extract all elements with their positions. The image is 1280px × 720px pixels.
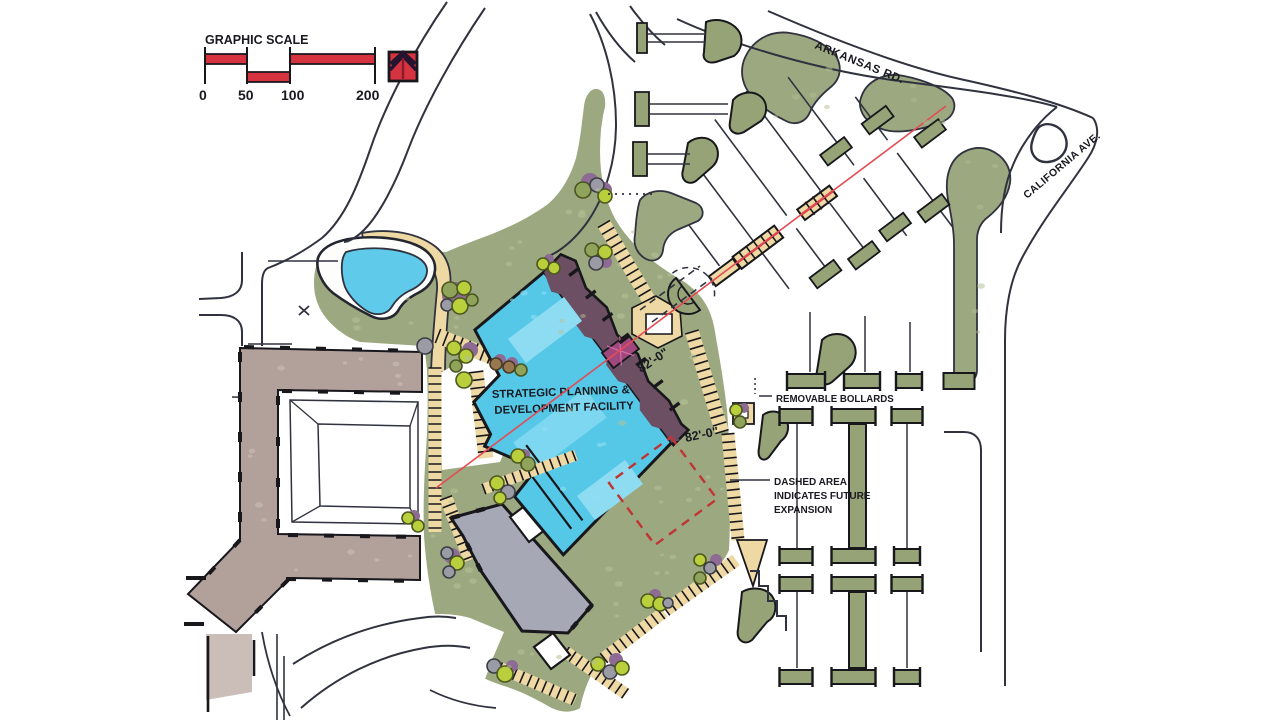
svg-text:200: 200 (356, 87, 380, 103)
svg-text:50: 50 (238, 87, 254, 103)
svg-text:INDICATES FUTURE: INDICATES FUTURE (774, 491, 871, 502)
svg-text:GRAPHIC SCALE: GRAPHIC SCALE (205, 33, 308, 47)
svg-text:REMOVABLE BOLLARDS: REMOVABLE BOLLARDS (776, 394, 894, 405)
svg-text:100: 100 (281, 87, 305, 103)
svg-text:0: 0 (199, 87, 207, 103)
svg-text:EXPANSION: EXPANSION (774, 505, 832, 516)
svg-text:DASHED AREA: DASHED AREA (774, 477, 847, 488)
